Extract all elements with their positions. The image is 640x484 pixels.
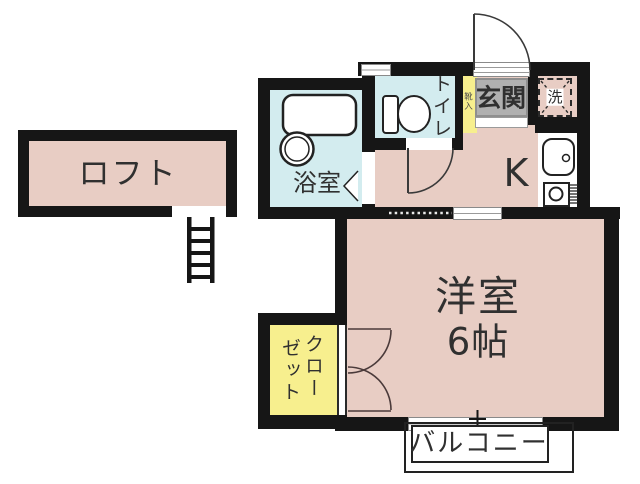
bath-wall-left (258, 78, 270, 217)
entrance-laundry-stub (528, 62, 538, 125)
main-room-label: 洋室 (435, 274, 521, 319)
mid-wall-horizontal (258, 207, 620, 219)
closet-door-panel (337, 325, 347, 415)
toilet-wall-right (455, 62, 463, 150)
main-wall-left (335, 207, 347, 325)
bathroom-door-panel (362, 152, 375, 204)
laundry-label: 洗 (546, 89, 563, 106)
closet-label-col1: クロー (303, 334, 322, 400)
closet-wall-bottom (258, 415, 347, 429)
upper-wall-top (358, 62, 590, 76)
loft-wall-top (18, 130, 237, 141)
closet-wall-top (258, 313, 347, 325)
loft-wall-right (226, 130, 237, 217)
floor-plan: ロフト 浴室 トイレ 玄関 洗 靴入 K 洋室 6帖 クロー ゼット バルコニー (0, 0, 640, 484)
closet-wall-left (258, 313, 270, 429)
main-wall-right (604, 207, 619, 431)
kitchen-label: K (504, 153, 529, 195)
entrance-label: 玄関 (476, 84, 526, 112)
toilet-label: トイレ (431, 74, 450, 140)
kitchen-counter-area (538, 133, 577, 207)
balcony-label: バルコニー (409, 430, 548, 459)
loft-label: ロフト (79, 157, 178, 191)
main-room-size-label: 6帖 (447, 323, 510, 364)
loft-ladder-opening (172, 206, 226, 217)
closet-label-col2: ゼット (280, 338, 299, 404)
upper-wall-right (577, 62, 590, 219)
ladder-icon (187, 217, 215, 283)
loft-wall-left (18, 130, 29, 217)
entrance-step (475, 117, 528, 128)
shoe-cabinet-label: 靴入 (463, 92, 472, 111)
bath-label: 浴室 (293, 170, 341, 196)
bath-wall-top (258, 78, 375, 90)
